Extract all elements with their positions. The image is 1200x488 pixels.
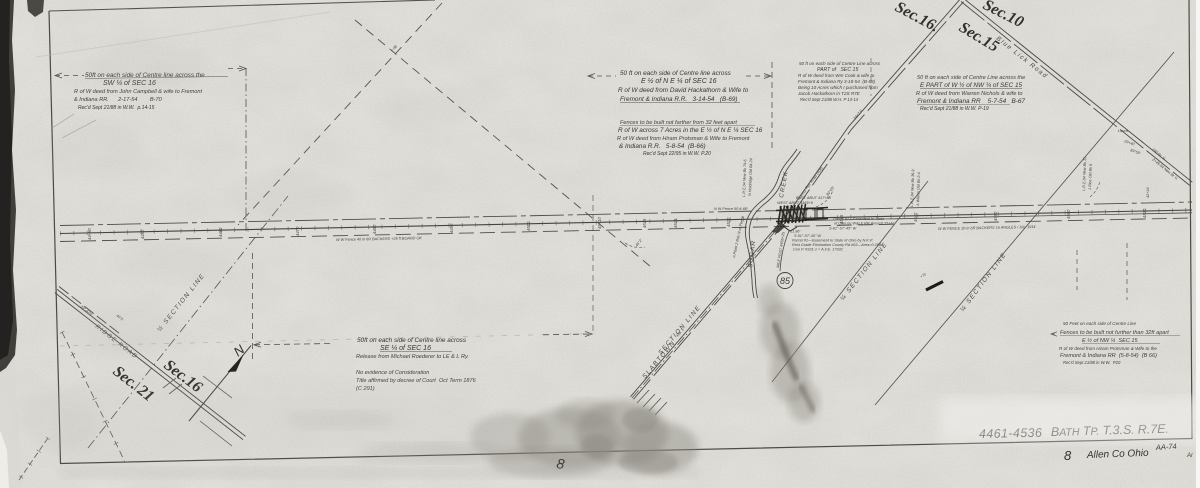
svg-text:Fences to be built not further: Fences to be built not further than 32ft… <box>1060 330 1169 336</box>
svg-text:4540: 4540 <box>913 212 918 222</box>
svg-text:51.96': 51.96' <box>790 230 801 234</box>
svg-text:S 81°-07'-45" W: S 81°-07'-45" W <box>794 234 821 238</box>
svg-text:Con P. #331-1 = A.F.E. 17932: Con P. #331-1 = A.F.E. 17932 <box>793 248 844 252</box>
svg-text:4470: 4470 <box>295 226 300 236</box>
svg-text:R of W deed from Wm Cook & wif: R of W deed from Wm Cook & wife to <box>798 73 875 78</box>
svg-text:44+50: 44+50 <box>87 228 92 240</box>
svg-text:50ft on each side of Centre li: 50ft on each side of Centre line across <box>357 337 467 344</box>
svg-text:Fremont & Indiana RR 5-7-54: Fremont & Indiana RR 5-7-54 B-67 <box>917 98 1025 105</box>
svg-text:of Ohio by W&LE RR Area=0.15±: of Ohio by W&LE RR Area=0.15±Ac <box>834 222 895 226</box>
svg-text:R of W deed from David Hackath: R of W deed from David Hackathorn & Wife… <box>618 87 749 94</box>
svg-text:E ½ of NW ¼ SEC 15: E ½ of NW ¼ SEC 15 <box>1082 337 1139 344</box>
svg-text:4520: 4520 <box>726 217 731 227</box>
svg-text:EAST ABUT 417+80: EAST ABUT 417+80 <box>796 196 832 200</box>
svg-text:R of W deed from John Campbell: R of W deed from John Campbell & wife to… <box>74 89 203 95</box>
svg-text:4460: 4460 <box>218 227 223 237</box>
svg-text:4500: 4500 <box>526 221 531 231</box>
svg-text:Fremont & Indiana Ry 3-18-54: Fremont & Indiana Ry 3-18-54 (B-68) <box>798 79 876 84</box>
svg-text:Rest Grade Elimination County: Rest Grade Elimination County Rd #63—Are… <box>792 243 883 247</box>
svg-text:42+24: 42+24 <box>1146 187 1150 198</box>
svg-text:4515: 4515 <box>642 218 647 228</box>
svg-text:4570: 4570 <box>1142 208 1147 218</box>
svg-text:Release from Michael Roederer: Release from Michael Roederer to LE & L … <box>356 354 469 360</box>
svg-text:Parcel #1—Easement to State of: Parcel #1—Easement to State of Ohio by N… <box>792 239 873 243</box>
svg-text:R of W across 7 Acres in the E: R of W across 7 Acres in the E ½ of N E … <box>618 126 763 134</box>
svg-text:Rec'd Sept 21/88 in W.W. P-19: Rec'd Sept 21/88 in W.W. P-19 <box>920 106 989 112</box>
svg-text:50 Feet on each side of Cent: 50 Feet on each side of Centre Line <box>1063 321 1136 326</box>
svg-text:4450: 4450 <box>140 229 145 239</box>
svg-text:SE ¼ of SEC 16: SE ¼ of SEC 16 <box>380 345 431 352</box>
svg-text:50 ft on each side of Centre L: 50 ft on each side of Centre Line across… <box>917 75 1025 81</box>
svg-text:50 ft on each side of Centre: 50 ft on each side of Centre line across <box>620 70 732 77</box>
svg-text:Rec'd Sept 21/88 W.H. P 13-14: Rec'd Sept 21/88 W.H. P 13-14 <box>800 97 859 102</box>
svg-text:Fences to be built not farthe: Fences to be built not farther from 32 f… <box>620 120 737 126</box>
svg-text:Ar: Ar <box>1186 453 1194 459</box>
svg-text:8: 8 <box>1064 448 1072 463</box>
svg-text:& Indiana R.R. 5-8-54 (B-66: & Indiana R.R. 5-8-54 (B-66) <box>619 143 706 150</box>
svg-text:85: 85 <box>780 276 791 286</box>
svg-text:S-81°-07'-45" W: S-81°-07'-45" W <box>829 227 857 231</box>
svg-text:Rec'd Sept 21/88 in W.W. P20: Rec'd Sept 21/88 in W.W. P20 <box>1063 360 1121 365</box>
svg-text:E PART of W ½ of NW ¼ of SEC 1: E PART of W ½ of NW ¼ of SEC 15 <box>920 81 1022 89</box>
svg-text:WEST ABUT 4465+6: WEST ABUT 4465+6 <box>777 201 814 205</box>
svg-text:& Indiana RR. 2-17-54: & Indiana RR. 2-17-54 B-70 <box>74 97 163 103</box>
svg-text:N W Fence 50 ft-6R: N W Fence 50 ft-6R <box>714 207 748 211</box>
svg-text:AA-74: AA-74 <box>1155 442 1177 453</box>
svg-text:No evidence of Consideration: No evidence of Consideration <box>356 370 429 376</box>
svg-text:Being 10 Acres which I purchas: Being 10 Acres which I purchased from <box>798 85 878 90</box>
svg-text:Jacob Hackathorn in T2S R7E: Jacob Hackathorn in T2S R7E <box>797 91 861 96</box>
svg-text:Fremont & Indiana RR (5-8-54): Fremont & Indiana RR (5-8-54) (B 66) <box>1060 353 1157 359</box>
svg-text:4480: 4480 <box>372 224 377 234</box>
svg-text:R of W deed from Hiram Protsma: R of W deed from Hiram Protsman & Wife t… <box>617 136 750 142</box>
svg-text:Parcel #2—Easement to State: Parcel #2—Easement to State <box>833 217 884 221</box>
svg-text:R of W deed from Warren Nichol: R of W deed from Warren Nichols & wife t… <box>916 91 1023 97</box>
svg-text:Fremont & Indiana R.R. 3-14-: Fremont & Indiana R.R. 3-14-54 (B-69) <box>620 96 738 103</box>
svg-text:R of W deed from Hiram Protsma: R of W deed from Hiram Protsman & Wife t… <box>1059 346 1157 351</box>
svg-text:4518: 4518 <box>673 218 678 228</box>
svg-text:4490: 4490 <box>449 223 454 233</box>
svg-text:Rec'd Sept 22/95 in W.W. P.20: Rec'd Sept 22/95 in W.W. P.20 <box>643 151 711 157</box>
svg-text:4550: 4550 <box>993 211 998 221</box>
svg-text:E ½ of N E ¼ of SEC 16: E ½ of N E ¼ of SEC 16 <box>641 77 717 85</box>
svg-text:4560: 4560 <box>1066 209 1071 219</box>
svg-text:50 ft on each side of Centre: 50 ft on each side of Centre Line across <box>799 61 881 66</box>
svg-text:Allen Co Ohio: Allen Co Ohio <box>1086 448 1149 461</box>
svg-text:Rec'd Sept 21/88 in W.W. p.14: Rec'd Sept 21/88 in W.W. p.14-15 <box>78 105 155 111</box>
svg-text:Laura: Laura <box>1118 129 1128 133</box>
